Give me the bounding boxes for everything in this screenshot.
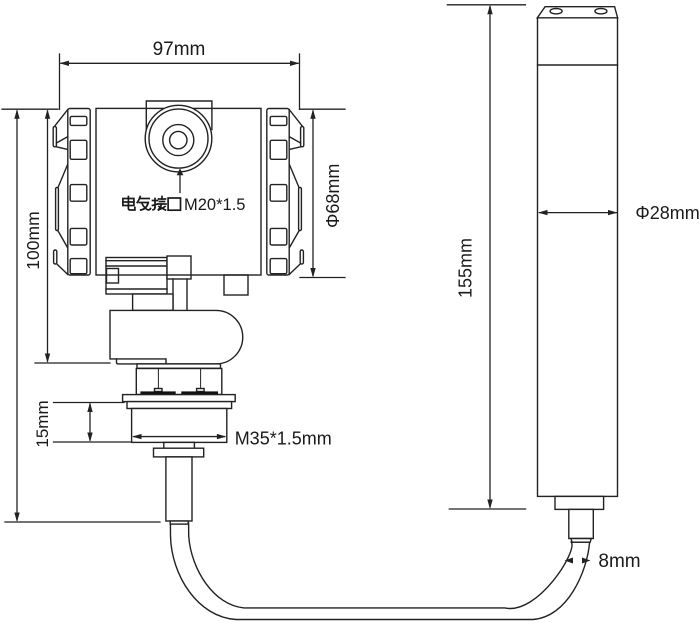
svg-text:M35*1.5mm: M35*1.5mm [235, 429, 332, 449]
svg-text:100mm: 100mm [23, 211, 43, 269]
svg-text:15mm: 15mm [33, 400, 52, 447]
svg-text:8mm: 8mm [598, 551, 640, 572]
svg-text:Φ68mm: Φ68mm [323, 164, 343, 228]
svg-text:97mm: 97mm [153, 39, 206, 60]
svg-text:155mm: 155mm [456, 238, 476, 298]
svg-text:M20*1.5: M20*1.5 [184, 196, 245, 214]
svg-text:Φ28mm: Φ28mm [635, 203, 699, 223]
